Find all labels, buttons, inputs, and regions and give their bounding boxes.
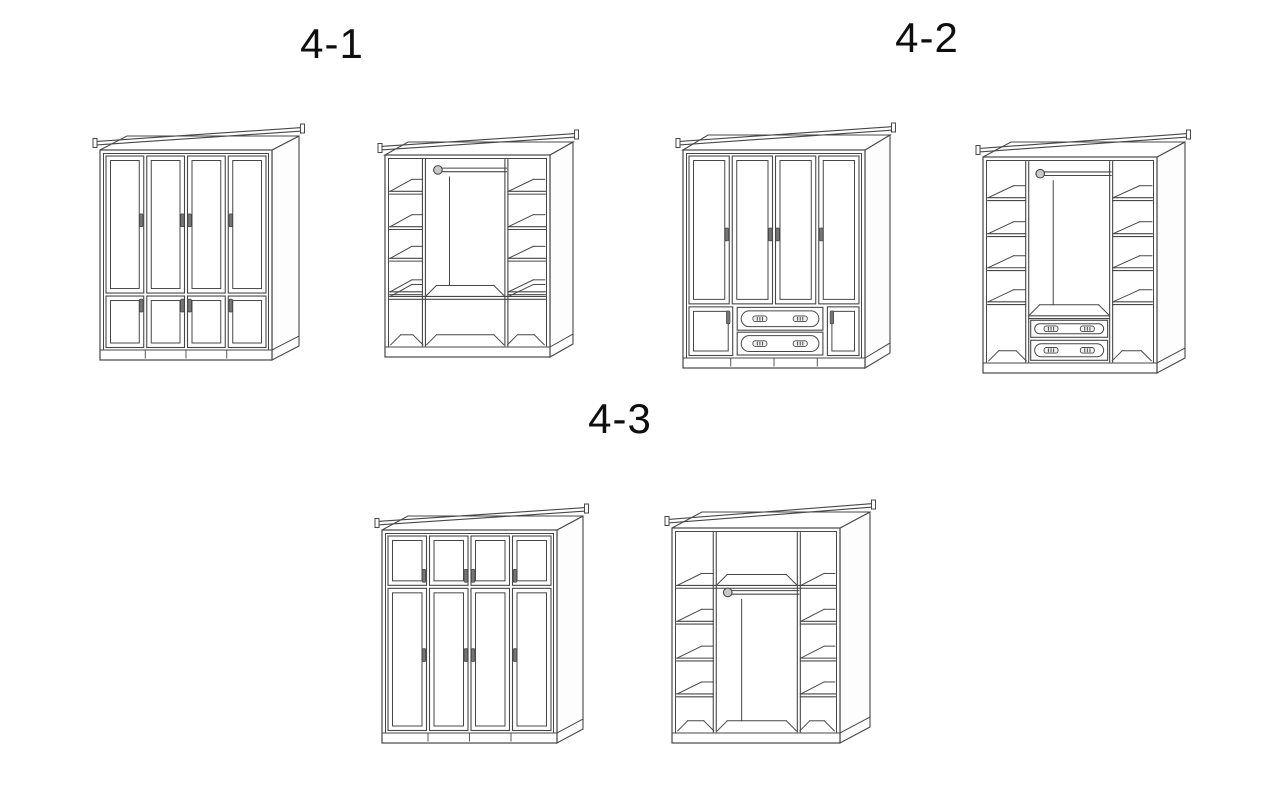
door-handle — [471, 649, 475, 662]
door-handle — [726, 311, 730, 324]
front-panel — [672, 528, 840, 743]
drawer-handle — [753, 316, 767, 322]
wardrobe-4-1-interior — [378, 130, 579, 357]
door-handle — [422, 649, 426, 662]
door-handle — [188, 214, 192, 227]
crown-rail-end — [93, 139, 97, 148]
drawer-handle — [1080, 347, 1094, 353]
door-handle — [725, 228, 729, 241]
side-panel — [272, 136, 299, 360]
door-handle — [513, 569, 517, 582]
door-handle — [769, 228, 773, 241]
door-handle — [513, 649, 517, 662]
drawer-handle — [1044, 326, 1058, 332]
door-handle — [464, 569, 468, 582]
side-panel — [550, 142, 573, 357]
crown-rail-end — [976, 146, 980, 155]
door-handle — [229, 214, 233, 227]
wardrobe-4-3-interior — [665, 500, 876, 743]
door-handle — [471, 569, 475, 582]
door-handle — [188, 299, 192, 312]
door-handle — [181, 299, 185, 312]
wardrobe-4-2-exterior — [676, 123, 896, 368]
crown-rail-end — [575, 130, 579, 139]
drawer-handle — [1080, 326, 1094, 332]
section-label-4-1: 4-1 — [300, 20, 364, 68]
crown-rail-end — [872, 500, 876, 509]
crown-rail-end — [892, 123, 896, 132]
crown-rail-end — [375, 519, 379, 528]
rod-end-cap — [1036, 169, 1045, 178]
door-handle — [229, 299, 233, 312]
front-panel — [100, 150, 272, 360]
crown-rail-end — [378, 144, 382, 153]
wardrobe-4-3-exterior — [375, 504, 589, 743]
door-handle — [830, 311, 834, 324]
crown-rail-end — [676, 139, 680, 148]
crown-rail-end — [1187, 130, 1191, 139]
crown-rail-end — [665, 517, 669, 526]
door-handle — [139, 214, 143, 227]
section-label-4-2: 4-2 — [895, 14, 959, 62]
rod-end-cap — [723, 588, 732, 597]
wardrobe-4-1-exterior — [93, 124, 305, 360]
rod-end-cap — [434, 166, 443, 175]
side-panel — [1157, 142, 1185, 373]
side-panel — [557, 516, 583, 743]
drawer-handle — [793, 316, 807, 322]
wardrobe-4-2-interior — [976, 130, 1191, 373]
front-panel — [382, 530, 557, 743]
section-label-4-3: 4-3 — [588, 395, 652, 443]
side-panel — [840, 512, 870, 743]
drawer-handle — [793, 341, 807, 347]
drawer-handle — [753, 341, 767, 347]
crown-rail-end — [585, 504, 589, 513]
drawer-handle — [1044, 347, 1058, 353]
crown-rail-end — [301, 124, 305, 133]
door-handle — [819, 228, 823, 241]
door-handle — [181, 214, 185, 227]
front-panel — [385, 155, 550, 357]
side-panel — [865, 135, 890, 368]
door-handle — [139, 299, 143, 312]
door-handle — [422, 569, 426, 582]
door-handle — [464, 649, 468, 662]
door-handle — [776, 228, 780, 241]
diagram-page: 4-1 4-2 4-3 — [0, 0, 1280, 800]
